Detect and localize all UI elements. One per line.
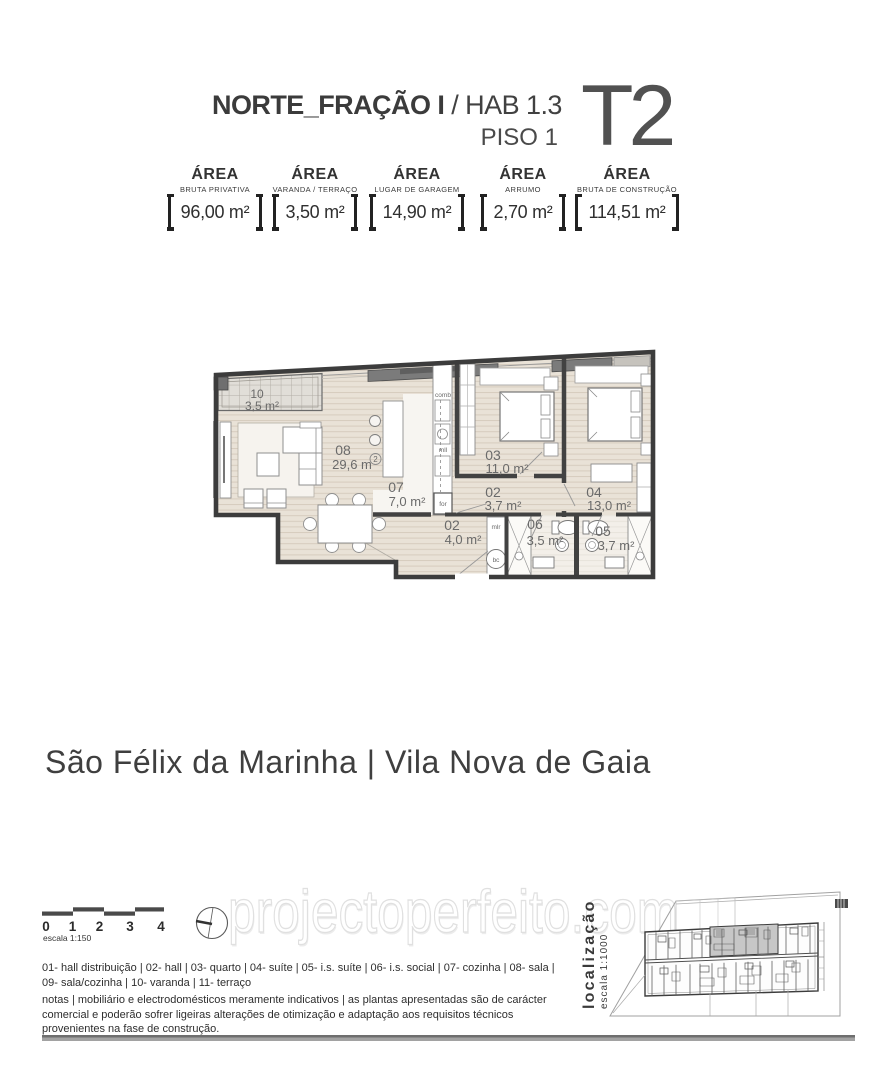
- svg-text:mll: mll: [439, 447, 448, 454]
- svg-text:02: 02: [444, 517, 460, 533]
- svg-text:mlr: mlr: [491, 524, 501, 531]
- svg-text:localização: localização: [581, 899, 598, 1009]
- svg-text:29,6 m: 29,6 m: [332, 457, 372, 472]
- svg-text:1: 1: [69, 919, 77, 934]
- svg-text:3,5 m²: 3,5 m²: [527, 533, 565, 548]
- svg-text:4,0 m²: 4,0 m²: [445, 532, 483, 547]
- svg-text:11,0 m²: 11,0 m²: [485, 461, 529, 476]
- svg-text:07: 07: [388, 479, 404, 495]
- svg-text:for: for: [439, 501, 447, 508]
- svg-text:13,0 m²: 13,0 m²: [587, 498, 632, 513]
- svg-text:escala 1:150: escala 1:150: [43, 933, 91, 943]
- svg-text:05: 05: [595, 523, 611, 539]
- svg-text:comb: comb: [435, 392, 451, 399]
- svg-text:0: 0: [42, 919, 50, 934]
- svg-text:escala 1:1000: escala 1:1000: [599, 934, 610, 1009]
- svg-text:7,0 m²: 7,0 m²: [389, 494, 427, 509]
- svg-text:3,5 m²: 3,5 m²: [245, 399, 279, 413]
- svg-text:3,7 m²: 3,7 m²: [485, 498, 523, 513]
- svg-text:2: 2: [373, 455, 378, 464]
- svg-text:3: 3: [126, 919, 134, 934]
- svg-text:4: 4: [157, 919, 165, 934]
- svg-text:06: 06: [527, 516, 543, 532]
- svg-text:bc: bc: [493, 557, 501, 564]
- svg-text:3,7 m²: 3,7 m²: [598, 538, 636, 553]
- svg-text:08: 08: [335, 442, 351, 458]
- svg-text:2: 2: [96, 919, 104, 934]
